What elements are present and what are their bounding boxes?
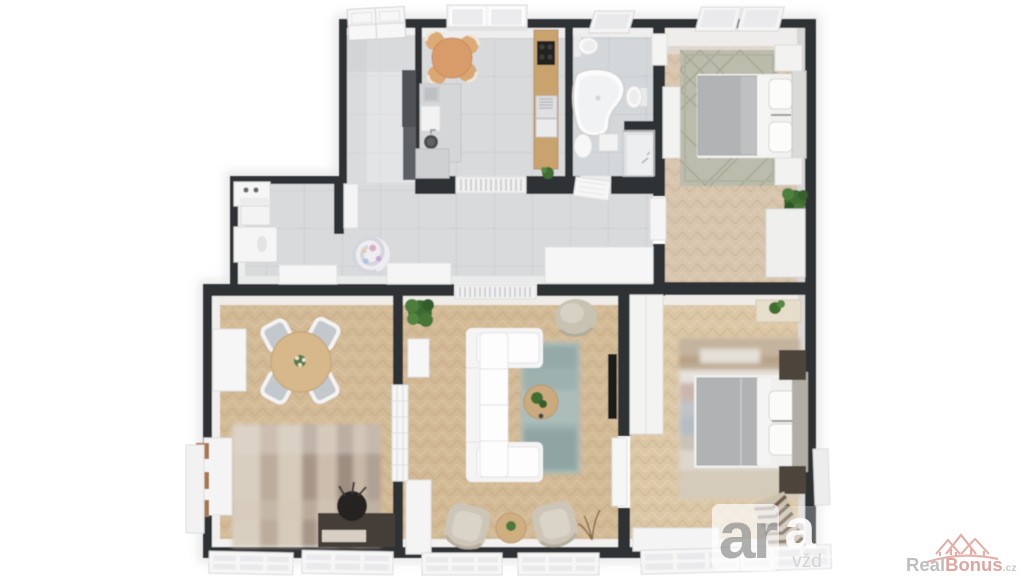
svg-text:vžd: vžd — [792, 551, 822, 572]
svg-text:RealBonus.cz: RealBonus.cz — [906, 554, 1017, 575]
svg-text:ar: ar — [719, 498, 778, 572]
